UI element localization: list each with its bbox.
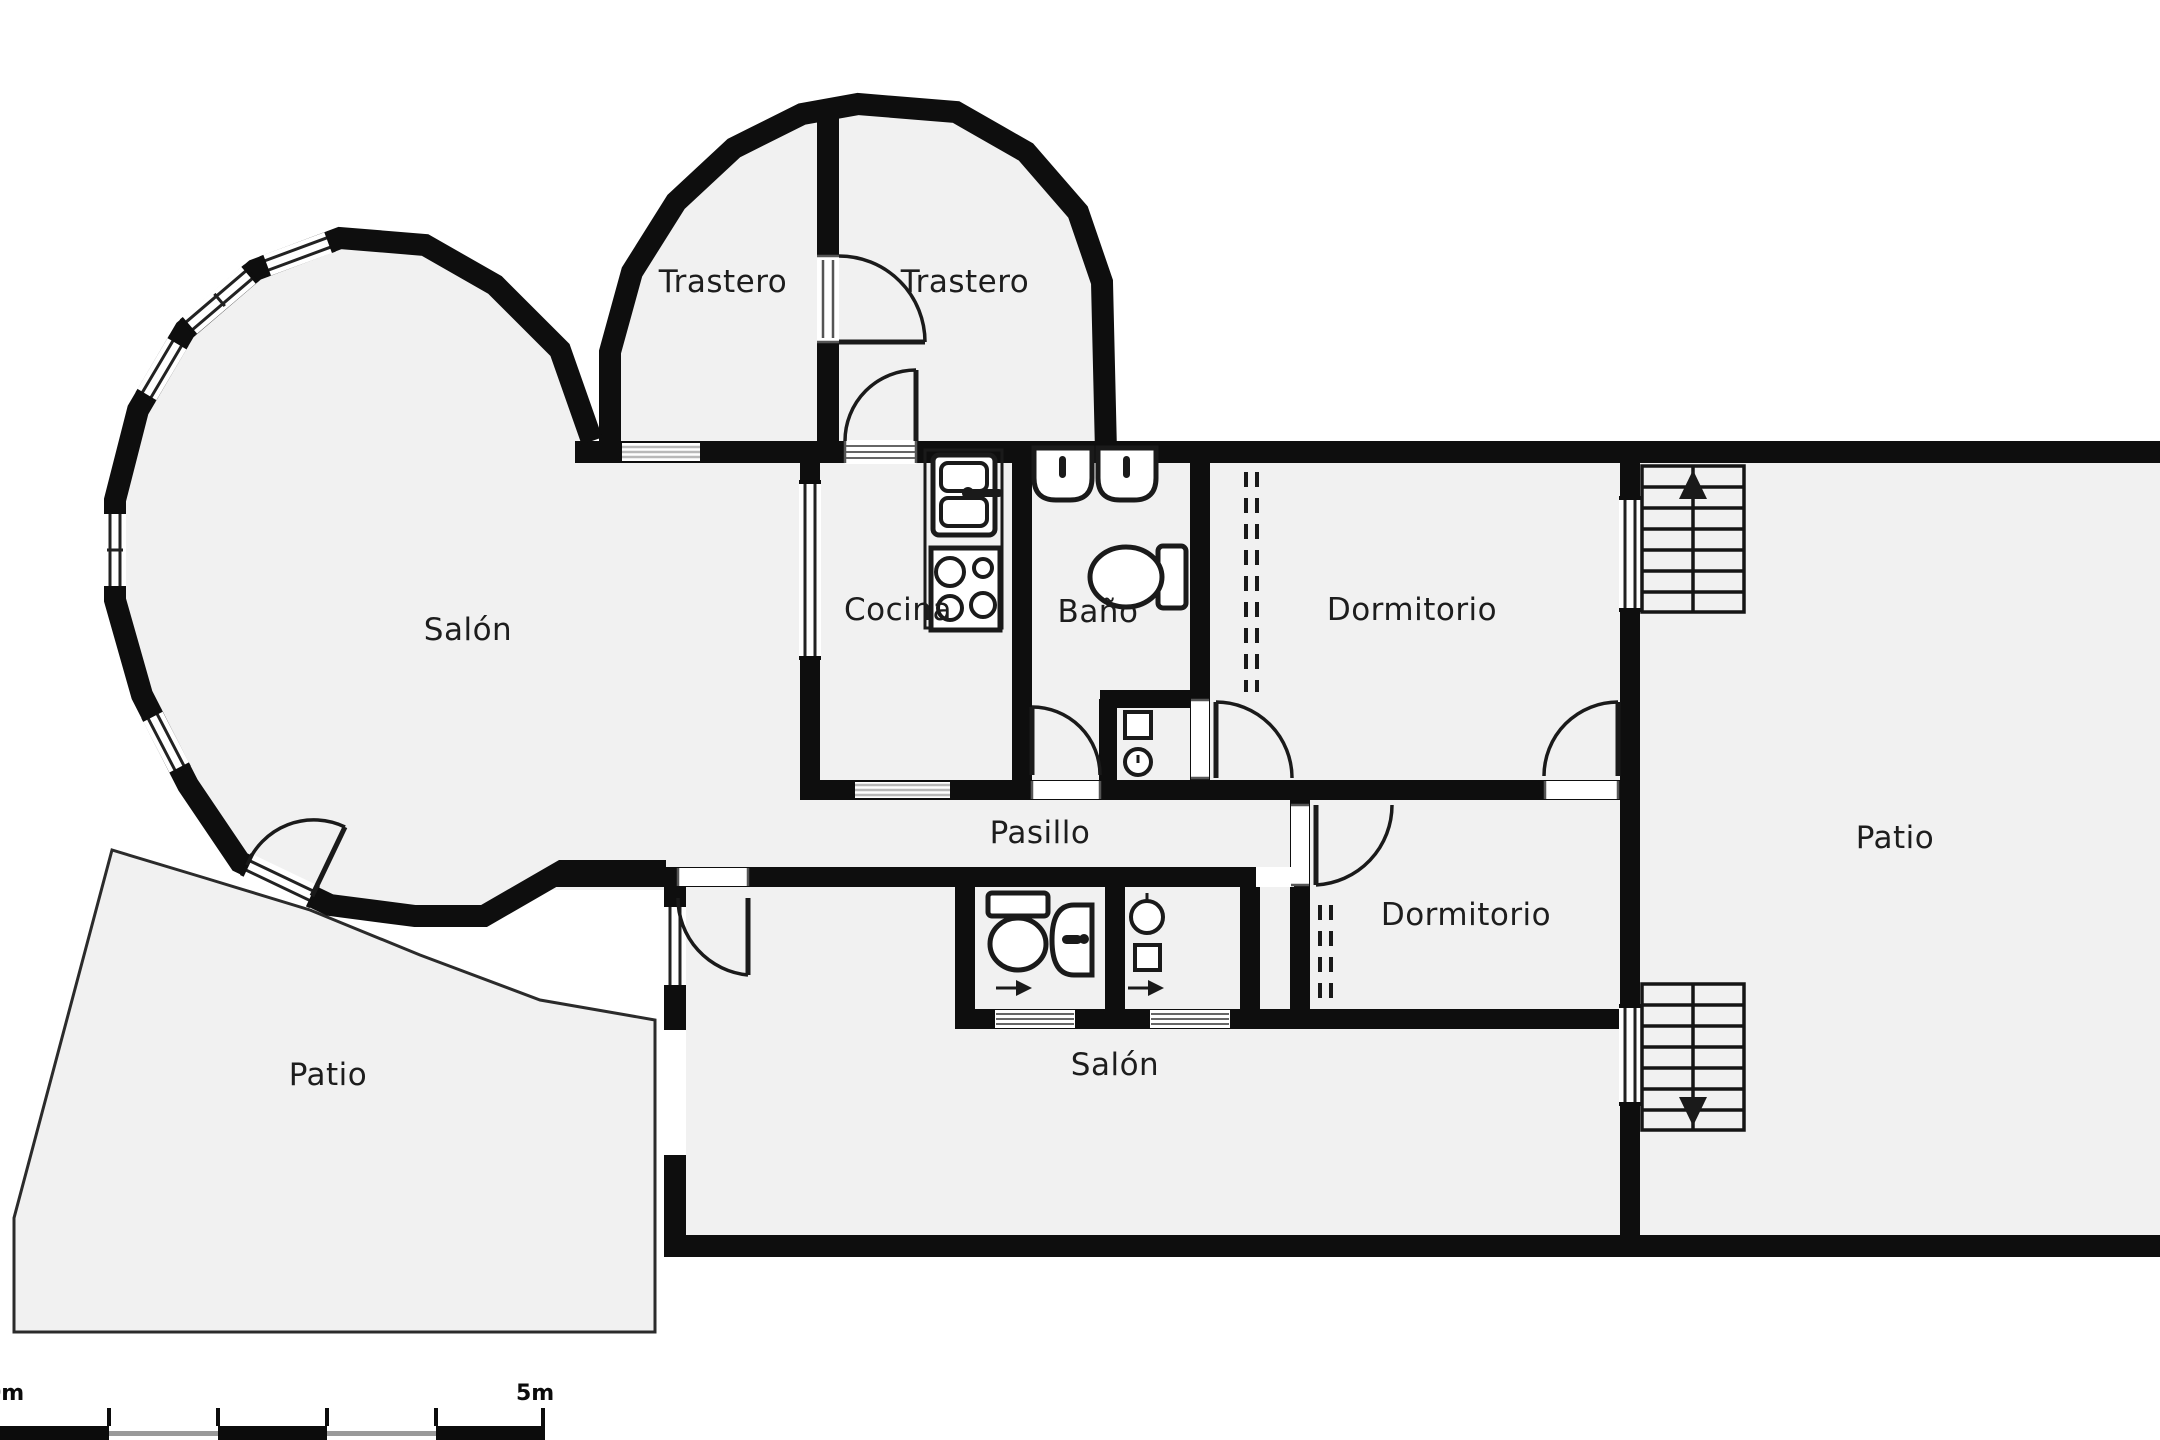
salon-window-4 — [104, 512, 126, 588]
room-label-dormitorio-mid: Dormitorio — [1381, 897, 1551, 933]
washbasin-icon — [1034, 448, 1092, 500]
room-label-trastero-left: Trastero — [658, 264, 788, 300]
room-label-salon-left: Salón — [424, 612, 512, 648]
washer-icon — [1135, 945, 1160, 970]
scale-end-label: 5m — [516, 1381, 554, 1406]
room-label-bano: Baño — [1058, 594, 1139, 630]
scale-start-label: 0m — [0, 1381, 24, 1406]
room-label-cocina: Cocina — [844, 592, 952, 628]
washer-icon — [1125, 712, 1151, 738]
scale-ticks — [109, 1408, 543, 1426]
room-label-pasillo: Pasillo — [990, 815, 1091, 851]
room-label-patio-right: Patio — [1856, 820, 1935, 856]
floorplan-drawing: Trastero Trastero Salón Cocina Baño Dorm… — [0, 0, 2160, 1440]
scale-bar: 0m 5m — [0, 1381, 554, 1440]
small-washbasin-icon — [1125, 749, 1151, 775]
room-label-trastero-right: Trastero — [900, 264, 1030, 300]
shower-basin-icon — [1052, 905, 1092, 975]
room-label-salon-bottom: Salón — [1071, 1047, 1159, 1083]
toilet-icon — [988, 893, 1048, 970]
floorplan-page: Trastero Trastero Salón Cocina Baño Dorm… — [0, 0, 2160, 1440]
room-label-dormitorio-top: Dormitorio — [1327, 592, 1497, 628]
room-fill-areas — [14, 104, 2160, 1332]
washbasin-icon — [1098, 448, 1156, 500]
room-label-patio-left: Patio — [289, 1057, 368, 1093]
